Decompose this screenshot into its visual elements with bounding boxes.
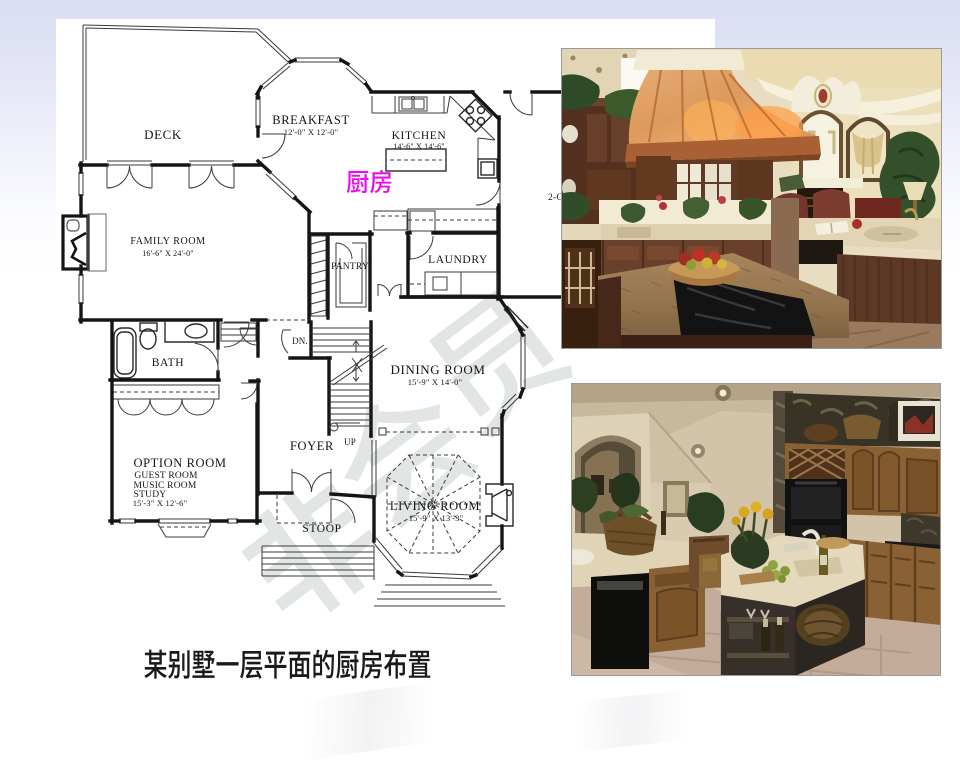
svg-text:STOOP: STOOP	[302, 523, 341, 535]
svg-text:16'-6" X 24'-0": 16'-6" X 24'-0"	[142, 249, 194, 258]
svg-text:14'-6" X 14'-6": 14'-6" X 14'-6"	[393, 142, 445, 151]
svg-text:2-C: 2-C	[548, 193, 563, 203]
svg-text:FAMILY ROOM: FAMILY ROOM	[130, 236, 205, 247]
svg-text:FOYER: FOYER	[290, 439, 334, 453]
svg-text:BATH: BATH	[152, 357, 184, 369]
svg-text:DINING ROOM: DINING ROOM	[390, 362, 485, 377]
svg-text:LAUNDRY: LAUNDRY	[428, 254, 488, 266]
svg-text:15'-9" X 14'-0": 15'-9" X 14'-0"	[408, 377, 463, 387]
svg-text:PANTRY: PANTRY	[331, 262, 369, 272]
svg-text:KITCHEN: KITCHEN	[392, 130, 447, 142]
svg-text:UP: UP	[344, 437, 356, 447]
svg-text:GUEST ROOM: GUEST ROOM	[134, 471, 198, 481]
svg-text:15'-9" X 13'-3": 15'-9" X 13'-3"	[409, 513, 464, 523]
svg-text:15'-3" X 12'-6": 15'-3" X 12'-6"	[133, 498, 188, 508]
svg-text:12'-0" X 12'-0": 12'-0" X 12'-0"	[284, 127, 339, 137]
svg-text:LIVING ROOM: LIVING ROOM	[390, 499, 480, 513]
svg-text:OPTION ROOM: OPTION ROOM	[133, 456, 226, 470]
svg-text:DN.: DN.	[292, 336, 308, 346]
svg-text:DECK: DECK	[144, 127, 182, 142]
svg-text:BREAKFAST: BREAKFAST	[272, 113, 349, 127]
